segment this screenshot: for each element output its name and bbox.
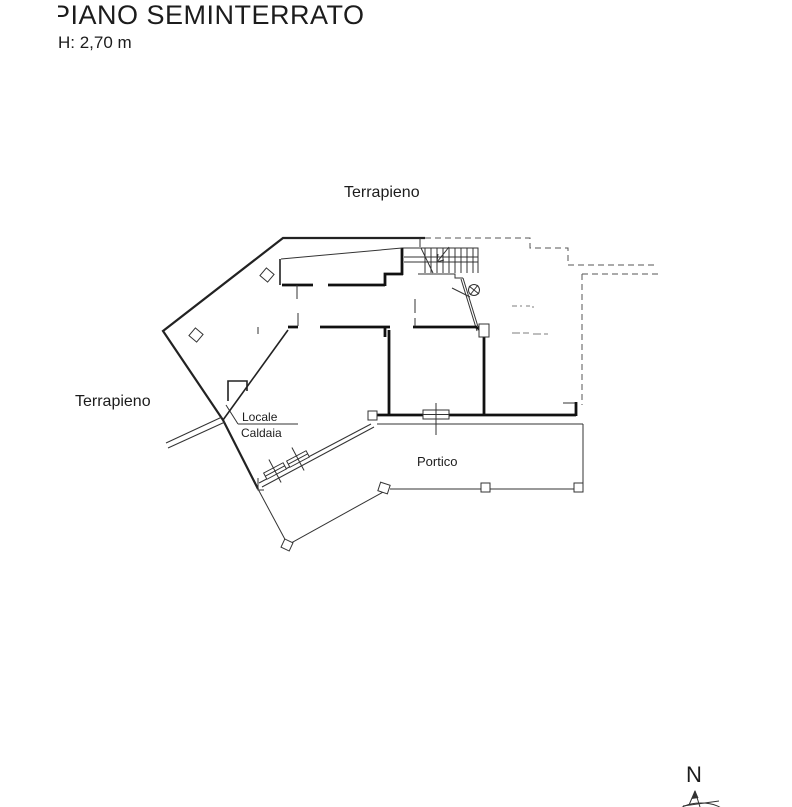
- column: [368, 411, 377, 420]
- column: [481, 483, 490, 492]
- stairs: [402, 238, 478, 278]
- compass-rose: [678, 790, 724, 807]
- label-terrapieno-left: Terrapieno: [75, 393, 151, 410]
- page-title: PIANO SEMINTERRATO: [52, 0, 365, 30]
- interior-walls: [258, 248, 576, 416]
- label-north: N: [686, 762, 702, 787]
- column: [378, 482, 390, 494]
- door-swing-icon: [469, 285, 480, 296]
- label-locale: Locale: [242, 410, 278, 424]
- label-terrapieno-top: Terrapieno: [344, 184, 420, 201]
- dashed-overhang-outline: [425, 238, 658, 405]
- faint-annotation-marks: [512, 306, 548, 334]
- label-caldaia: Caldaia: [241, 426, 282, 440]
- title-clip: [0, 0, 58, 33]
- column: [189, 328, 203, 342]
- window-icon: [282, 442, 314, 475]
- column: [260, 268, 274, 282]
- stair-side-wall: [452, 278, 480, 331]
- compass-needle-icon: [692, 790, 699, 799]
- window-icon: [423, 403, 449, 435]
- column: [281, 539, 293, 551]
- column: [574, 483, 583, 492]
- ceiling-height-note: H: 2,70 m: [58, 33, 132, 52]
- floor-plan-sheet: PIANO SEMINTERRATO H: 2,70 m Terrapieno …: [0, 0, 792, 807]
- label-portico: Portico: [417, 454, 457, 469]
- portico-outline: [258, 424, 583, 545]
- wall-end-pier: [479, 324, 489, 337]
- floor-plan-drawing: PIANO SEMINTERRATO H: 2,70 m Terrapieno …: [0, 0, 792, 807]
- window-icon: [259, 454, 291, 487]
- labels: PIANO SEMINTERRATO H: 2,70 m Terrapieno …: [0, 0, 702, 787]
